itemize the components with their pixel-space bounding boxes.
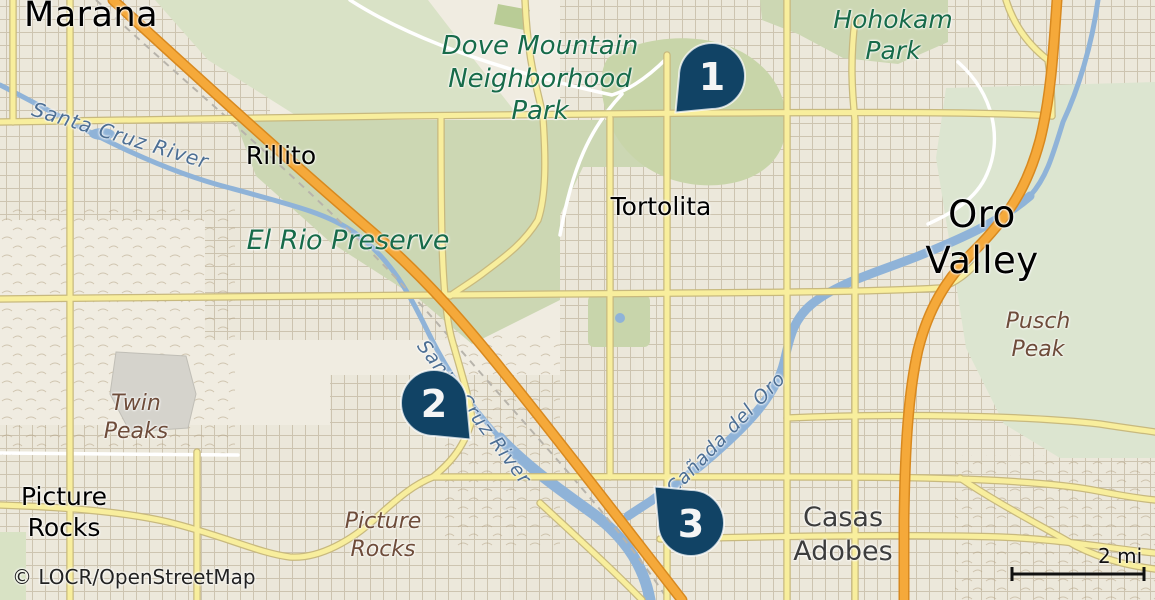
peak-label-twin-peaks: Twin Peaks bbox=[104, 390, 169, 445]
city-label-marana: Marana bbox=[24, 0, 158, 38]
peak-label-pusch-peak: Pusch Peak bbox=[1006, 308, 1071, 363]
town-label-picture-rocks: Picture Rocks bbox=[21, 481, 107, 544]
pin-1-number: 1 bbox=[699, 55, 725, 99]
town-label-tortolita: Tortolita bbox=[611, 191, 712, 222]
park-label-el-rio-preserve: El Rio Preserve bbox=[247, 224, 450, 258]
pond-small bbox=[615, 313, 625, 323]
town-label-rillito: Rillito bbox=[246, 140, 316, 171]
park-label-hohokam: Hohokam Park bbox=[833, 4, 952, 67]
park-label-dove-mountain: Dove Mountain Neighborhood Park bbox=[442, 30, 639, 128]
pin-3-number: 3 bbox=[678, 502, 704, 546]
suburb-label-casas-adobes: Casas Adobes bbox=[793, 501, 892, 569]
scale-bar-label: 2 mi bbox=[1098, 544, 1142, 569]
pin-2-number: 2 bbox=[421, 382, 447, 426]
city-label-oro-valley: Oro Valley bbox=[896, 192, 1069, 285]
map-attribution: © LOCR/OpenStreetMap bbox=[12, 565, 256, 590]
locale-label-picture-rocks: Picture Rocks bbox=[345, 508, 422, 563]
map-canvas[interactable]: Marana Oro Valley Rillito Tortolita Pict… bbox=[0, 0, 1155, 600]
